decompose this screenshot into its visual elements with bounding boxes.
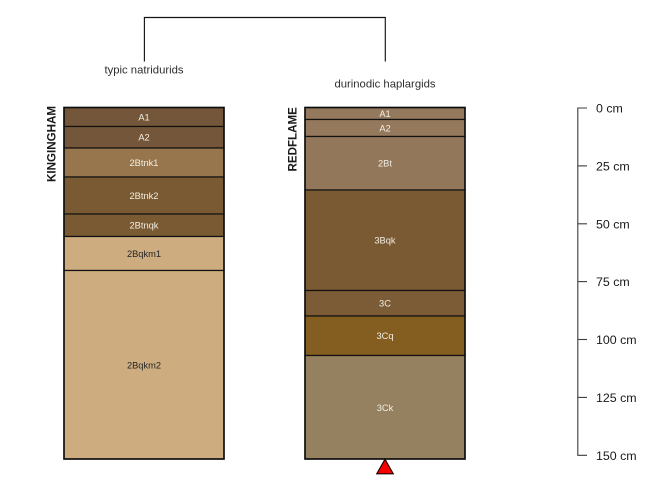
svg-text:3Bqk: 3Bqk <box>374 236 396 246</box>
svg-text:2Bqkm2: 2Bqkm2 <box>127 360 161 370</box>
svg-text:25 cm: 25 cm <box>596 159 630 173</box>
svg-text:KINGINGHAM: KINGINGHAM <box>46 106 59 182</box>
svg-text:REDFLAME: REDFLAME <box>287 107 300 172</box>
svg-text:A1: A1 <box>379 109 390 119</box>
svg-text:125 cm: 125 cm <box>596 391 637 405</box>
svg-text:75 cm: 75 cm <box>596 275 630 289</box>
svg-text:2Bqkm1: 2Bqkm1 <box>127 249 161 259</box>
svg-text:2Btnqk: 2Btnqk <box>130 221 159 231</box>
svg-text:50 cm: 50 cm <box>596 217 630 231</box>
svg-text:2Btnk1: 2Btnk1 <box>130 158 159 168</box>
svg-text:3Cq: 3Cq <box>376 331 393 341</box>
svg-text:100 cm: 100 cm <box>596 333 637 347</box>
svg-text:A2: A2 <box>379 123 390 133</box>
svg-text:3C: 3C <box>379 299 391 309</box>
svg-text:3Ck: 3Ck <box>377 403 394 413</box>
svg-text:typic natridurids: typic natridurids <box>104 65 183 77</box>
svg-text:2Bt: 2Bt <box>378 159 392 169</box>
svg-text:A1: A1 <box>138 113 149 123</box>
svg-text:2Btnk2: 2Btnk2 <box>130 191 159 201</box>
svg-text:150 cm: 150 cm <box>596 449 637 463</box>
svg-text:0 cm: 0 cm <box>596 102 623 116</box>
svg-text:durinodic haplargids: durinodic haplargids <box>334 79 435 91</box>
svg-text:A2: A2 <box>138 133 149 143</box>
